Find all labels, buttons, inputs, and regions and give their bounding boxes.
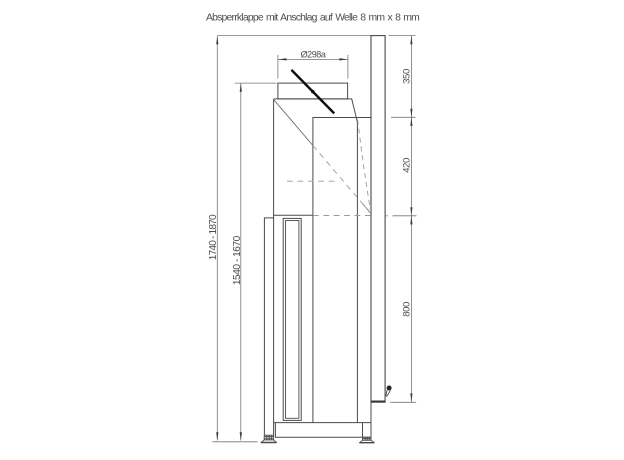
svg-text:350: 350: [401, 69, 412, 84]
svg-text:Ø298a: Ø298a: [301, 49, 326, 59]
svg-text:800: 800: [401, 302, 412, 317]
svg-text:1540 - 1670: 1540 - 1670: [232, 235, 243, 285]
svg-text:Absperrklappe mit Anschlag auf: Absperrklappe mit Anschlag auf Welle 8 m…: [206, 13, 419, 24]
svg-text:420: 420: [401, 158, 412, 173]
svg-text:1740 - 1870: 1740 - 1870: [208, 214, 219, 260]
